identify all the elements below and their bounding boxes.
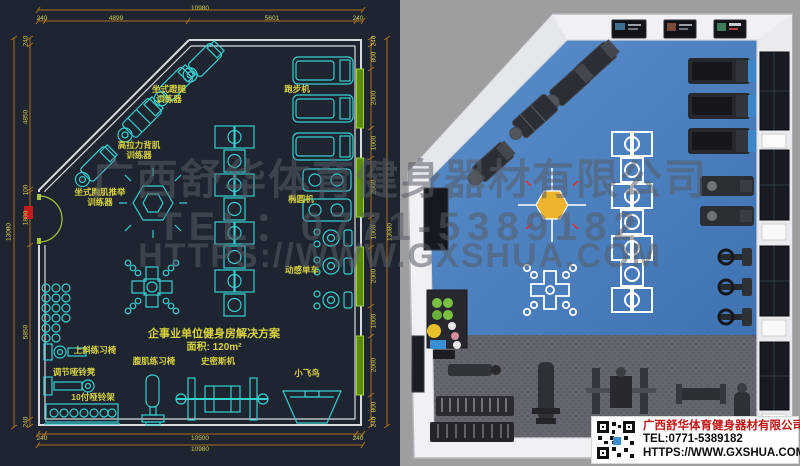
cad-floorplan-panel: 企事业单位健身房解决方案 面积: 120m² 坐式蹬腿 训练器高拉力背肌 训练器…: [0, 0, 400, 466]
poster-icon: [714, 20, 746, 38]
treadmill: [688, 93, 756, 119]
gym-layout-screenshot: 企事业单位健身房解决方案 面积: 120m² 坐式蹬腿 训练器高拉力背肌 训练器…: [0, 0, 800, 466]
render-3d-panel: [400, 0, 800, 466]
incline-bench-symbol: [44, 344, 86, 360]
smith-machine-3d: [586, 367, 656, 414]
elliptical: [700, 206, 754, 226]
treadmill-symbol: [293, 57, 353, 160]
equipment-symbols: [42, 39, 353, 425]
cable-crossover-symbol: [283, 391, 341, 423]
spin-bike-symbol: [314, 229, 352, 309]
window-icon: [760, 246, 789, 316]
wall-card: [762, 224, 786, 240]
window-icon: [760, 342, 789, 410]
elliptical: [700, 176, 754, 196]
plate-rack-symbol: [42, 284, 70, 342]
cross-marking-symbol: [125, 260, 179, 314]
render-3d-image: [400, 0, 800, 466]
elliptical-symbol: [303, 169, 351, 221]
ab-bench-symbol: [142, 375, 164, 425]
right-wall-windows: [760, 52, 789, 428]
left-wall-mirror-icon: [424, 188, 448, 250]
contact-info-card: 广西舒华体育健身器材有限公司 TEL:0771-5389182 HTTPS://…: [591, 416, 799, 464]
phone-number: TEL:0771-5389182: [643, 433, 800, 447]
lat-pulldown-symbol: [113, 95, 165, 147]
cad-drawing: [0, 0, 400, 466]
qr-code-icon: [595, 419, 637, 461]
wall-posters: [612, 20, 746, 38]
treadmill: [688, 128, 756, 154]
spin-bikes-3d: [719, 248, 752, 326]
dumbbell-bench-symbol: [44, 377, 94, 395]
company-name: 广西舒华体育健身器材有限公司: [643, 420, 800, 434]
hopscotch-ladder-symbol: [215, 126, 254, 316]
window-icon: [760, 150, 789, 220]
treadmill: [688, 58, 756, 84]
poster-icon: [612, 20, 646, 38]
dumbbell-rack-symbol: [44, 404, 120, 424]
window-icon: [760, 52, 789, 130]
smith-machine-symbol: [176, 378, 268, 420]
website-url: HTTPS://WWW.GXSHUA.COM: [643, 447, 800, 461]
wall-card: [762, 320, 786, 336]
room-walls: [39, 40, 361, 425]
left-wall-window-icon: [412, 336, 424, 392]
wall-card: [762, 134, 786, 148]
treadmills-3d: [688, 58, 756, 154]
door-marker-icon: [24, 206, 33, 219]
poster-icon: [664, 20, 696, 38]
leg-press-symbol: [150, 63, 197, 110]
hexagon-marking-symbol: [119, 168, 187, 238]
